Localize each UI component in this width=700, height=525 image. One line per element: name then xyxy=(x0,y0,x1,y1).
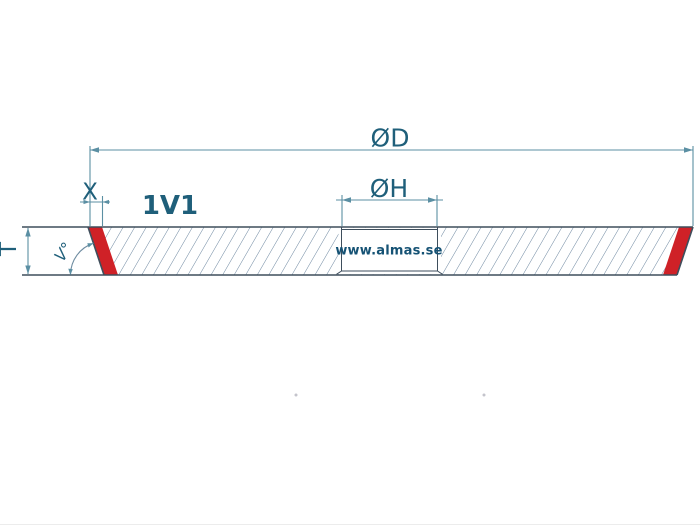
oh-arrow-right xyxy=(428,197,437,202)
wheel-profile-diagram: www.almas.se ØD ØH X T V xyxy=(0,0,700,525)
od-arrow-right xyxy=(684,147,693,152)
oh-arrow-left xyxy=(342,197,351,202)
t-arrow-bottom xyxy=(25,266,30,275)
oh-label: ØH xyxy=(370,174,408,203)
x-arrow-right xyxy=(103,200,110,204)
x-label: X xyxy=(82,180,98,206)
t-arrow-top xyxy=(25,228,30,237)
angle-arrow-bottom xyxy=(68,269,73,275)
od-label: ØD xyxy=(371,124,410,153)
profile-code-label: 1V1 xyxy=(142,191,198,221)
watermark-text: www.almas.se xyxy=(335,244,442,259)
stray-dot-left xyxy=(295,394,298,397)
angle-label: V° xyxy=(50,239,76,265)
od-arrow-left xyxy=(90,147,99,152)
angle-arrow-top xyxy=(87,243,93,247)
stray-dot-right xyxy=(483,394,486,397)
t-label: T xyxy=(0,241,22,257)
drawing-canvas: www.almas.se ØD ØH X T V xyxy=(0,0,700,525)
